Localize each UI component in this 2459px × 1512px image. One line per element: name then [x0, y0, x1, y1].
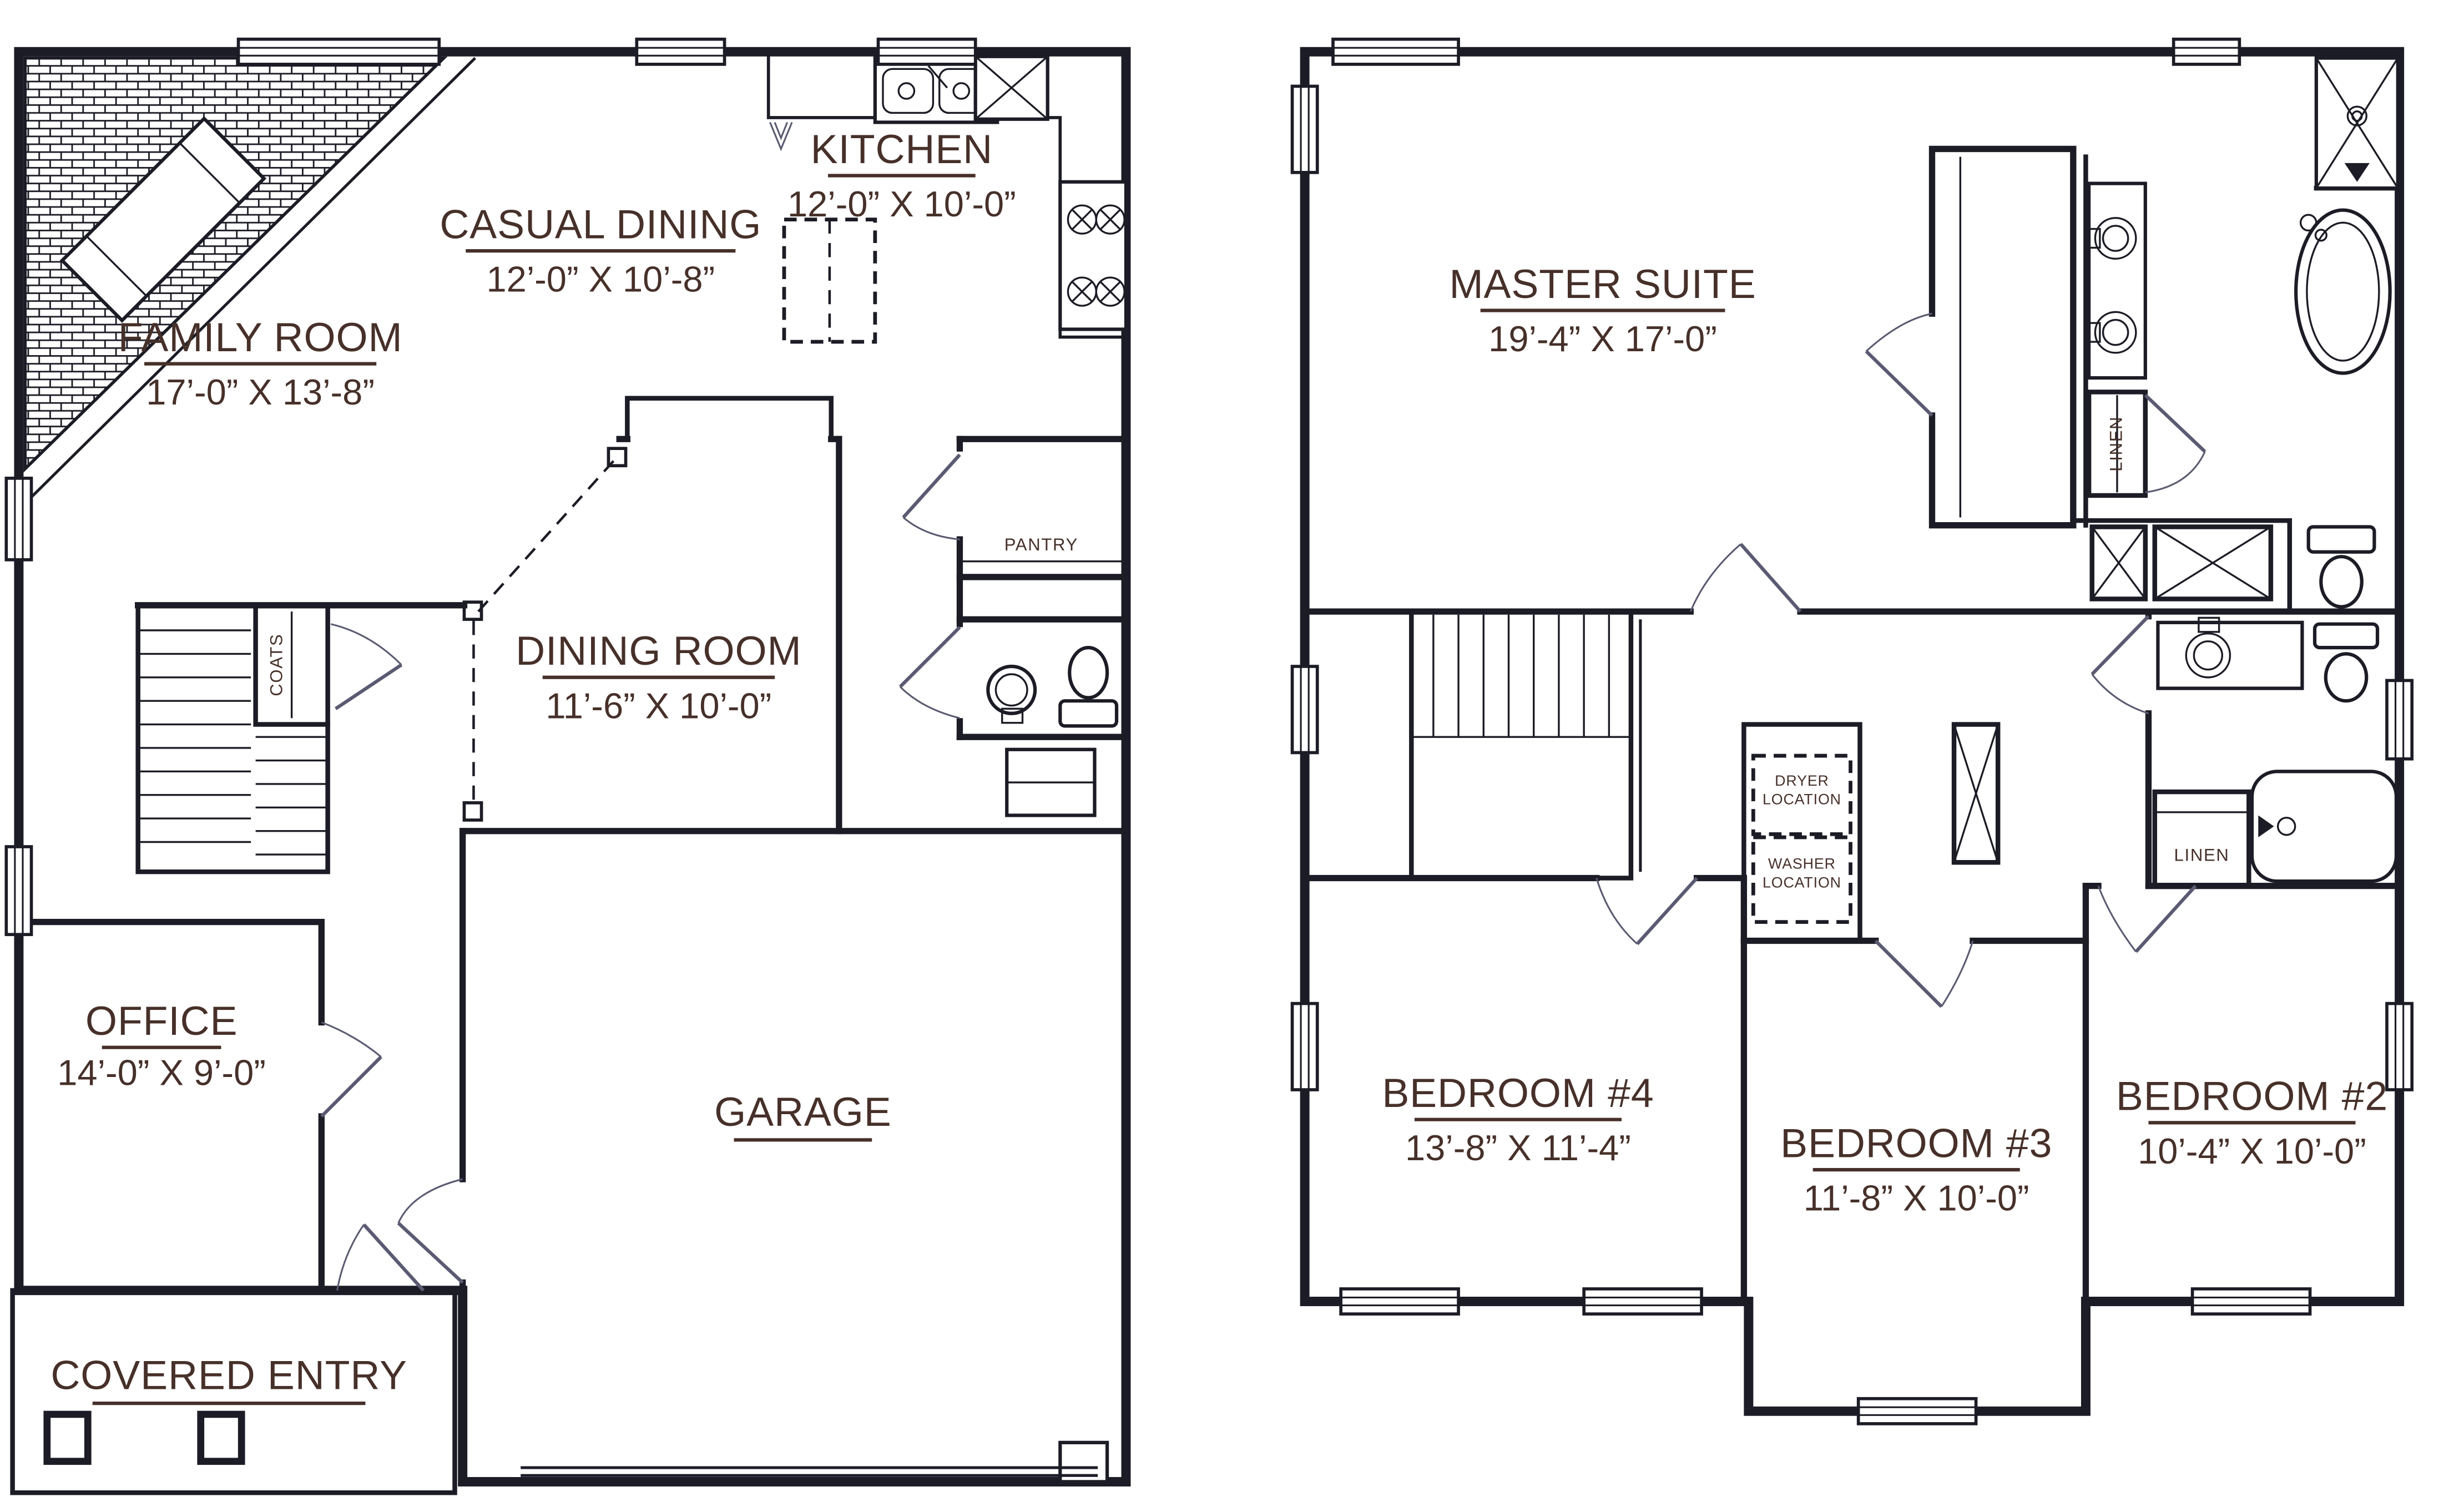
room-label-kitchen: KITCHEN	[811, 126, 993, 172]
labels-first-floor: FAMILY ROOM 17’-0” X 13’-8” CASUAL DININ…	[51, 126, 1078, 1403]
toilet-bowl	[2326, 654, 2366, 701]
interior-walls-second-floor	[1305, 149, 2399, 1411]
shower	[2316, 58, 2398, 189]
toilet-tank	[1060, 701, 1117, 726]
room-label-family-room: FAMILY ROOM	[118, 314, 403, 360]
refrigerator	[976, 57, 1048, 119]
second-floor-plan: DRYER LOCATION WASHER LOCATION	[1292, 39, 2412, 1424]
labels-second-floor: MASTER SUITE 19’-4” X 17’-0” BEDROOM #4 …	[1382, 261, 2388, 1218]
laundry-closet: DRYER LOCATION WASHER LOCATION	[1753, 756, 1850, 922]
room-dims-bedroom-4: 13’-8” X 11’-4”	[1405, 1127, 1631, 1168]
toilet-tank	[2315, 624, 2377, 648]
room-label-casual-dining: CASUAL DINING	[440, 201, 761, 247]
casual-dining-chandelier	[770, 122, 792, 149]
first-floor-plan: FAMILY ROOM 17’-0” X 13’-8” CASUAL DININ…	[6, 39, 1126, 1493]
room-label-bedroom-2: BEDROOM #2	[2116, 1073, 2388, 1119]
staircase	[138, 605, 328, 872]
garden-tub	[2296, 210, 2390, 373]
floor-plan-sheet: FAMILY ROOM 17’-0” X 13’-8” CASUAL DININ…	[0, 0, 2459, 1511]
toilet-bowl	[1069, 648, 1107, 697]
room-dims-bedroom-3: 11’-8” X 10’-0”	[1804, 1178, 2029, 1218]
label-coats: COATS	[267, 634, 286, 696]
room-label-garage: GARAGE	[714, 1089, 891, 1135]
room-dims-office: 14’-0” X 9’-0”	[57, 1053, 266, 1093]
porch-post	[47, 1414, 88, 1462]
label-washer-line1: WASHER	[1768, 856, 1836, 872]
room-label-dining-room: DINING ROOM	[516, 628, 801, 674]
stove	[1060, 182, 1126, 330]
room-label-covered-entry: COVERED ENTRY	[51, 1352, 407, 1398]
label-pantry: PANTRY	[1004, 535, 1078, 554]
porch-post	[201, 1414, 241, 1462]
powder-room	[988, 648, 1117, 726]
interior-walls-first-floor	[19, 398, 1126, 1482]
room-label-office: OFFICE	[85, 998, 238, 1044]
room-dims-kitchen: 12’-0” X 10’-0”	[787, 184, 1016, 224]
room-label-bedroom-3: BEDROOM #3	[1780, 1120, 2052, 1166]
fireplace	[25, 58, 475, 504]
room-label-bedroom-4: BEDROOM #4	[1382, 1070, 1654, 1116]
doors-first-floor	[321, 455, 960, 1291]
room-dims-family-room: 17’-0” X 13’-8”	[146, 372, 375, 412]
garage-steps	[1007, 750, 1107, 1482]
water-closet-toilet	[2309, 527, 2375, 606]
label-linen-master: LINEN	[2106, 416, 2125, 472]
room-dims-dining-room: 11’-6” X 10’-0”	[546, 685, 771, 726]
label-dryer-line1: DRYER	[1775, 772, 1829, 789]
room-label-master-suite: MASTER SUITE	[1450, 261, 1756, 307]
label-washer-line2: LOCATION	[1763, 874, 1841, 891]
kitchen-island-dashed	[784, 220, 875, 342]
double-vanity	[2087, 184, 2145, 378]
label-dryer-line2: LOCATION	[1763, 791, 1841, 808]
garage-door	[521, 1468, 1098, 1475]
room-dims-master-suite: 19’-4” X 17’-0”	[1488, 318, 1717, 359]
stairwell	[1411, 611, 1640, 878]
linen-closet-hall	[2155, 792, 2249, 886]
room-dims-casual-dining: 12’-0” X 10’-8”	[486, 259, 715, 300]
chase	[1954, 725, 1998, 863]
label-linen-hall: LINEN	[2174, 845, 2230, 864]
room-dims-bedroom-2: 10’-4” X 10’-0”	[2138, 1131, 2366, 1171]
